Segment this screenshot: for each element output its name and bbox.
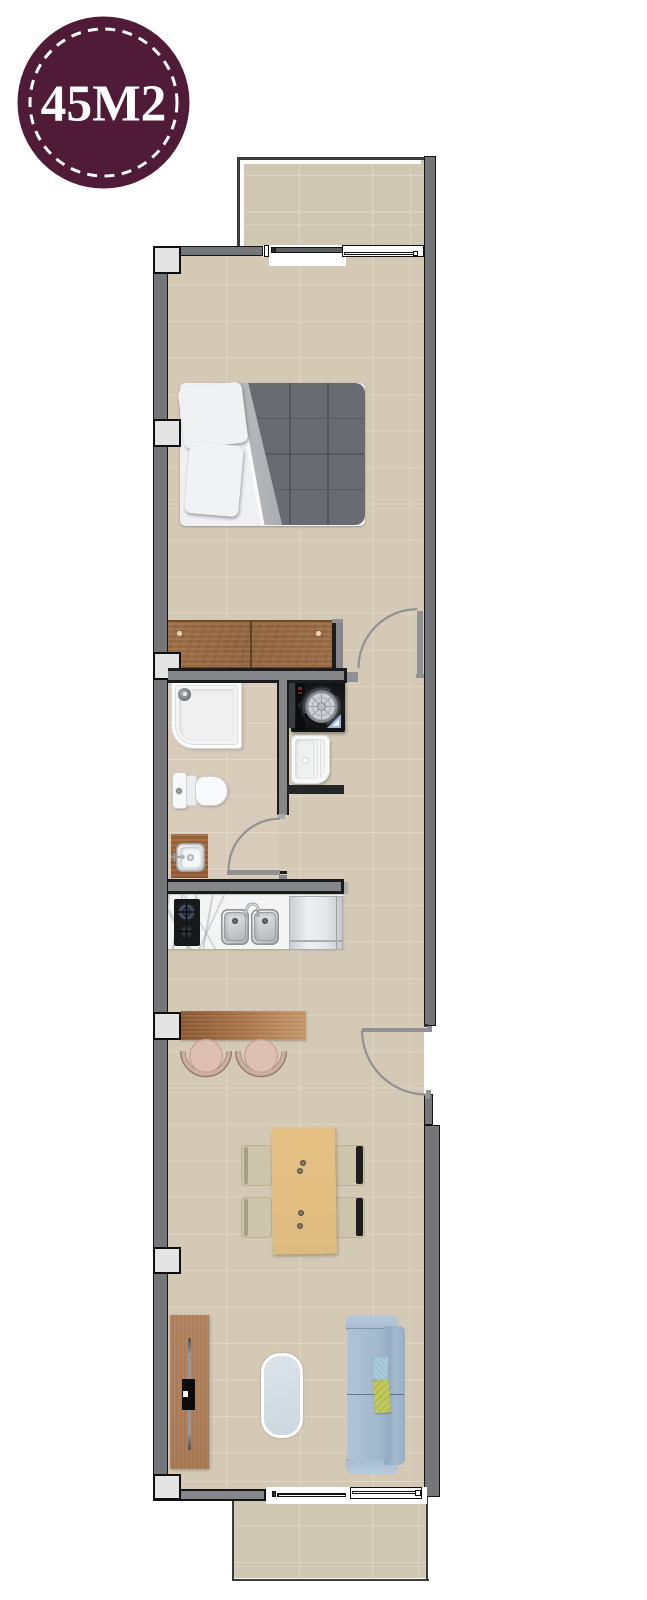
svg-text:45M2: 45M2 xyxy=(41,76,167,133)
